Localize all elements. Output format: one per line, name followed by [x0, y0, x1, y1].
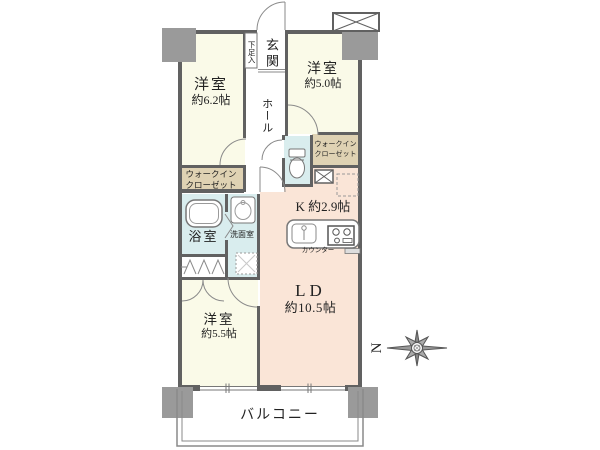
entrance-label: 玄関	[263, 35, 278, 73]
bedroom3-label: 洋室 約5.5帖	[180, 312, 258, 340]
bedroom1-size: 約6.2帖	[176, 94, 246, 108]
wic-left-line2: クローゼット	[185, 180, 236, 190]
compass-north-label: N	[369, 337, 389, 359]
pillar-top-right	[342, 30, 378, 60]
bedroom2-size: 約5.0帖	[287, 78, 359, 91]
living-dining-label: LD 約10.5帖	[262, 281, 359, 315]
washbasin	[231, 197, 255, 223]
wic-right-line1: ウォークイン	[315, 141, 357, 148]
toilet-door-arc	[262, 140, 282, 160]
bathroom-label: 浴室	[181, 230, 226, 245]
hall-label: ホール	[260, 96, 273, 136]
bathtub	[186, 200, 222, 227]
washing-machine-pan	[236, 253, 257, 274]
bedroom2-name: 洋室	[307, 62, 339, 77]
floor-plan: 洋室 約6.2帖 洋室 約5.0帖 洋室 約5.5帖 LD 約10.5帖 K 約…	[0, 0, 600, 450]
ld-name: LD	[295, 281, 326, 300]
wic-right-line2: クローゼット	[315, 151, 357, 158]
kitchen-counter-label: カウンター	[298, 247, 338, 254]
kitchen-label: K 約2.9帖	[286, 200, 360, 215]
bedroom3-size: 約5.5帖	[180, 328, 258, 341]
pillar-top-left	[162, 28, 196, 62]
wic-left-label: ウォークイン クローゼット	[179, 169, 243, 191]
kitchen-stove	[328, 226, 354, 245]
entrance-door-arc	[257, 2, 285, 30]
meter-box	[333, 13, 379, 31]
balcony-label: バルコニー	[232, 408, 328, 424]
bedroom1-label: 洋室 約6.2帖	[176, 77, 246, 108]
ld-size: 約10.5帖	[262, 301, 359, 316]
bedroom1-name: 洋室	[194, 77, 228, 93]
kitchen-left-area	[284, 186, 313, 194]
bedroom2-label: 洋室 約5.0帖	[287, 62, 359, 91]
washroom-label: 洗面室	[226, 230, 258, 239]
counter-end-panel	[345, 249, 360, 254]
shoe-cabinet-label: 下足入	[247, 37, 256, 67]
wic-right-label: ウォークイン クローゼット	[311, 140, 360, 160]
compass-rose	[387, 330, 447, 366]
pipe-shaft	[315, 170, 333, 183]
ld-door-arc	[260, 167, 285, 192]
wic-left-line1: ウォークイン	[185, 169, 236, 179]
bedroom3-name: 洋室	[204, 312, 235, 327]
toilet-fixture	[289, 149, 305, 178]
